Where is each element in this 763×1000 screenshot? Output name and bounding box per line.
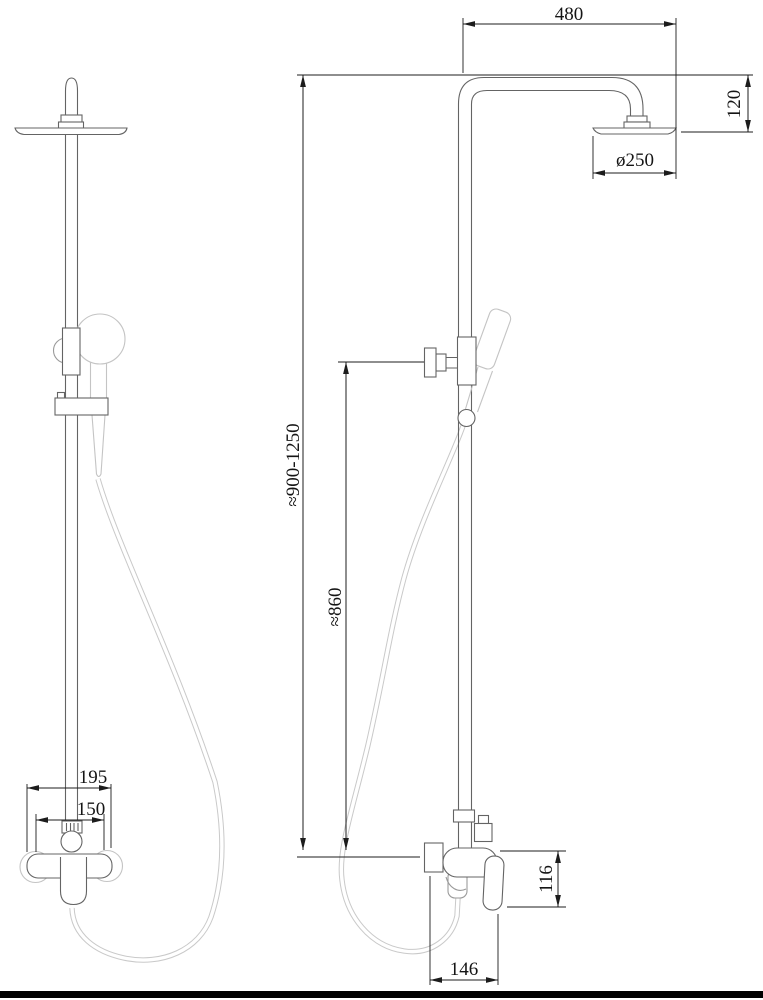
handle-grip <box>92 415 105 477</box>
hand-shower-head <box>75 314 125 364</box>
mixer-front <box>20 821 123 905</box>
dimension-labels: 480 120 ø250 ≈900-1250 ≈860 116 146 195 … <box>77 4 745 980</box>
hand-shower-grip-edge <box>478 371 493 412</box>
mixer-spout <box>61 857 87 905</box>
rail-slider-side <box>458 337 477 385</box>
dim-label-head-drop: 120 <box>724 90 745 119</box>
holder-stem <box>446 358 458 369</box>
dim-label-mixer-width-side: 146 <box>450 959 479 980</box>
riser-pipe-side-inner <box>472 91 631 849</box>
hand-shower-hose-side <box>341 426 463 952</box>
diverter-tab <box>479 816 489 824</box>
hand-shower-side <box>471 307 512 371</box>
hand-shower-holder <box>55 398 108 415</box>
head-connector-upper-side <box>627 116 647 122</box>
shower-head-disc <box>15 128 127 135</box>
hand-shower-hose-core <box>72 479 222 960</box>
ball-joint <box>61 831 82 852</box>
shower-head-disc-side <box>593 128 676 134</box>
holder-knob-side <box>425 348 437 377</box>
side-view-dimensions <box>297 18 753 985</box>
holder-step <box>436 354 446 371</box>
dim-label-column-height: ≈900-1250 <box>283 423 304 506</box>
dim-label-hose-pipe-length: ≈860 <box>325 588 346 627</box>
dim-label-inlet-spacing: 150 <box>77 799 106 820</box>
diverter-knob <box>475 824 493 842</box>
dim-label-head-diameter: ø250 <box>616 150 654 171</box>
hand-shower-handle <box>91 360 107 477</box>
front-view <box>15 78 222 960</box>
rail-slider <box>63 328 81 375</box>
hand-shower-hose-side-core <box>341 426 463 952</box>
hand-shower-hose <box>72 479 222 960</box>
shower-column-drawing: 480 120 ø250 ≈900-1250 ≈860 116 146 195 … <box>0 0 763 1000</box>
side-view <box>297 18 753 985</box>
riser-pipe <box>66 78 78 822</box>
dim-label-mixer-width-front: 195 <box>79 767 108 788</box>
wall-flange <box>425 843 444 872</box>
dim-label-arm-reach: 480 <box>555 4 584 25</box>
riser-pipe-side-outer <box>459 78 644 849</box>
pipe-fitting <box>454 810 475 822</box>
dim-label-mixer-height: 116 <box>536 865 557 893</box>
head-connector-upper <box>61 115 82 123</box>
hand-shower-head-side <box>471 307 512 371</box>
technical-drawing-page: 480 120 ø250 ≈900-1250 ≈860 116 146 195 … <box>0 0 763 1000</box>
mixer-lever <box>483 856 505 911</box>
page-footer-bar <box>0 991 763 998</box>
swivel-ball <box>458 410 475 427</box>
